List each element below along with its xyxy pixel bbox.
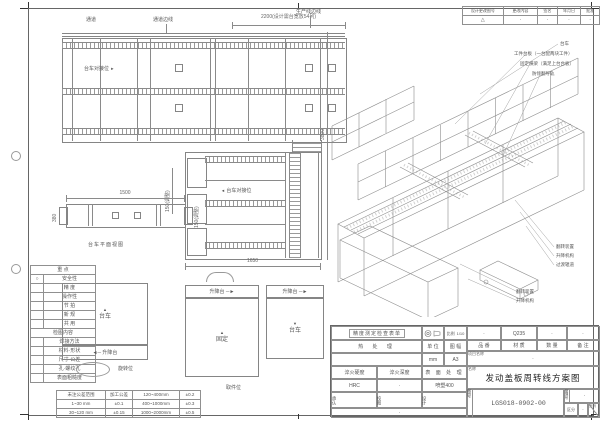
reg-mark [298, 3, 299, 8]
leader-line [166, 24, 167, 33]
roller-strip [62, 42, 345, 49]
line [215, 38, 216, 141]
design-label: 设计 [422, 396, 427, 405]
drawing-no-cell: 图号 LGS018-0902-00 [466, 388, 565, 418]
callout-guide-rail: 防倾翻导轨 [532, 71, 555, 77]
inspect-header: 精度测定检查表单 [349, 329, 405, 338]
up-arrow-icon: ▲ [220, 331, 224, 335]
reg-mark [28, 2, 29, 8]
up-arrow-icon: ▲ [103, 308, 107, 312]
line [184, 207, 193, 225]
rotate-arc [206, 272, 234, 282]
line [72, 38, 73, 141]
tol-cell: ±0.1 [106, 400, 133, 409]
roller-strip [205, 242, 285, 249]
reg-mark [28, 414, 29, 420]
line [210, 38, 211, 141]
line [305, 64, 313, 72]
drawing-title: 发动盖板周转线方案图 [485, 372, 580, 384]
line [285, 38, 286, 141]
revision-cell: △ [463, 16, 504, 25]
callout-turnover: 翻转装置 [556, 244, 574, 250]
dim-line [232, 25, 345, 26]
line [66, 204, 186, 228]
plan-view [62, 28, 347, 150]
callout-lifter-2: 升降机构 [516, 298, 534, 304]
revision-cell: · [557, 16, 581, 25]
checklist-title: 重 点 [31, 266, 96, 275]
revision-cell: · [503, 16, 537, 25]
dim-tick [185, 263, 186, 270]
center-view: ◄ 台车对接位 [185, 150, 320, 262]
revision-col: 设计更改图号 [463, 7, 504, 16]
rotate-ellipse [76, 362, 110, 377]
revision-cell: · [581, 16, 600, 25]
tol-cell: ±0.3 [180, 400, 201, 409]
revision-header-row: 设计更改图号 更改内容 签名 年月日 批准 [463, 7, 600, 16]
check-mark: ○ [31, 275, 44, 284]
callout-transfer: 过渡辊道 [556, 262, 574, 268]
roller-strip [62, 88, 345, 95]
line [156, 204, 157, 226]
line-edge-label: 生产线边线 [296, 9, 321, 15]
tol-cell: 1~30 mm [57, 400, 106, 409]
iso-drawing [330, 32, 596, 317]
line [92, 204, 93, 226]
dim-line [185, 266, 320, 267]
lift-label: 升降台 ─► [210, 289, 235, 295]
tol-cell: 1000~2000mm [133, 409, 180, 418]
iso-view [330, 32, 596, 317]
page-label: 页码 [589, 404, 596, 408]
fixed-label: 固定 [216, 337, 228, 343]
tol-cell: ±0.2 [180, 391, 201, 400]
approve-label: 承认 [332, 396, 337, 405]
dim-380: 380 [52, 214, 58, 222]
roller-strip [205, 156, 285, 163]
scale-value: 1/10 [457, 331, 465, 336]
callout-lifter: 升降机构 [556, 253, 574, 259]
line [134, 212, 141, 219]
reg-mark [298, 414, 299, 419]
pick-pos-label: 取件位 [226, 385, 241, 391]
dim-adjust-2: 150(调整) [194, 206, 200, 228]
check-label: 校图 [377, 396, 382, 405]
projection-symbol-icon [424, 329, 442, 338]
callout-cart: 台车 [560, 41, 569, 47]
revision-col: 签名 [538, 7, 558, 16]
tol-cell: ±0.15 [106, 409, 133, 418]
aisle-label: 通道 [86, 17, 96, 23]
right-arrow-icon: ► [110, 66, 114, 71]
schematic-cart-box: ▲ 台车 [62, 283, 148, 345]
callout-pallet: 工件台板（一台配两块工件） [514, 51, 573, 57]
line [88, 204, 89, 226]
line [112, 212, 119, 219]
tol-cell: 30~120 mm [57, 409, 106, 418]
tol-cell: 加工公差 [106, 391, 133, 400]
roller-strip [205, 200, 285, 207]
dim-3800: 3800 [320, 129, 326, 140]
schematic-fixed-box: ▲ 固定 [185, 297, 259, 377]
aisle-edge-label: 通道边线 [153, 17, 173, 23]
dock-label-text: 台车对接位 [84, 66, 109, 72]
tol-cell: 未注公差范围 [57, 391, 106, 400]
tolerance-table: 未注公差范围 加工公差 120~400mm ±0.2 1~30 mm ±0.1 … [56, 390, 201, 418]
line [205, 224, 285, 225]
page-cell: 页码 [587, 402, 600, 418]
line [175, 64, 183, 72]
title-block: 精度测定检查表单 比例 1/10 热 处 理 单 位 图 幅 mm A3 淬火硬… [330, 325, 599, 417]
line [320, 38, 321, 141]
line [187, 158, 207, 188]
line [205, 180, 285, 181]
down-arrow-icon: ▼ [293, 322, 297, 326]
mgmt-value: · [570, 393, 599, 399]
tol-cell: ±0.5 [180, 409, 201, 418]
check-mark [31, 284, 44, 293]
revision-col: 批准 [581, 7, 600, 16]
project-label: 项目名称 [468, 352, 484, 356]
schematic-lift-strip: ◄─ 升降台 [62, 345, 148, 360]
line [248, 38, 249, 141]
punch-hole [11, 151, 21, 161]
line [160, 204, 161, 226]
tol-cell: 120~400mm [133, 391, 180, 400]
check-mark [31, 311, 44, 320]
callout-beam: 固定横梁（满足上台台板） [520, 61, 574, 67]
revision-col: 年月日 [557, 7, 581, 16]
dock-label-text: 台车对接位 [226, 188, 251, 194]
cart-label: 台车 [99, 314, 111, 320]
dim-tick [184, 195, 185, 202]
drawing-sheet: 通道 通道边线 2200(设计需台宽放54列) 生产线边线 台车对接位 ► 38… [0, 0, 600, 424]
line [137, 38, 138, 141]
scale-label: 比例 [447, 331, 455, 337]
line [62, 33, 345, 37]
dim-2200: 2200(设计需台宽放54列) [232, 14, 345, 20]
leader-line [310, 16, 311, 28]
tol-cell: 400~1000mm [133, 400, 180, 409]
punch-hole [11, 264, 21, 274]
check-mark [31, 302, 44, 311]
check-mark [31, 293, 44, 302]
dim-line [327, 32, 328, 260]
revision-value-row: △ · · · · [463, 16, 600, 25]
drawing-no: LGS018-0902-00 [473, 400, 564, 407]
line [305, 104, 313, 112]
revision-cell: · [538, 16, 558, 25]
cart-label: 台车 [289, 328, 301, 334]
roller-strip [62, 128, 345, 135]
line [318, 152, 319, 258]
dim-line [66, 198, 184, 199]
lift-label: ◄─ 升降台 [93, 350, 118, 356]
check-mark [31, 320, 44, 329]
left-arrow-icon: ◄ [221, 188, 225, 193]
line [175, 104, 183, 112]
line [285, 152, 286, 258]
reg-mark [20, 8, 28, 9]
side-view-caption: 台车平面视图 [88, 242, 124, 248]
line [100, 38, 101, 141]
schematic-cart-box-2: ▼ 台车 [266, 297, 324, 359]
dock-label: ◄ 台车对接位 [221, 188, 251, 194]
revision-col: 更改内容 [503, 7, 537, 16]
dim-1650: 1650 [185, 258, 320, 264]
callout-turnover-2: 翻转装置 [516, 289, 534, 295]
name-cell: 名称 发动盖板周转线方案图 [466, 365, 600, 390]
reg-mark [20, 414, 28, 415]
name-label: 名称 [468, 367, 476, 371]
line [150, 38, 151, 141]
project-value: · [532, 356, 534, 362]
lift-label: 升降台 ─► [283, 289, 308, 295]
roller-strip [289, 152, 301, 258]
dock-label: 台车对接位 ► [84, 66, 114, 72]
dim-tick [66, 195, 67, 202]
revision-table: 设计更改图号 更改内容 签名 年月日 批准 △ · · · · [462, 6, 600, 25]
dim-tick [232, 22, 233, 29]
line [59, 207, 68, 225]
dim-tick [320, 263, 321, 270]
dim-tick [345, 22, 346, 29]
dim-1500: 1500 [66, 190, 184, 196]
side-view: 1500 [58, 190, 198, 248]
rotate-pos-label: 旋转位 [118, 366, 133, 372]
note-row-cell: · [331, 407, 468, 418]
